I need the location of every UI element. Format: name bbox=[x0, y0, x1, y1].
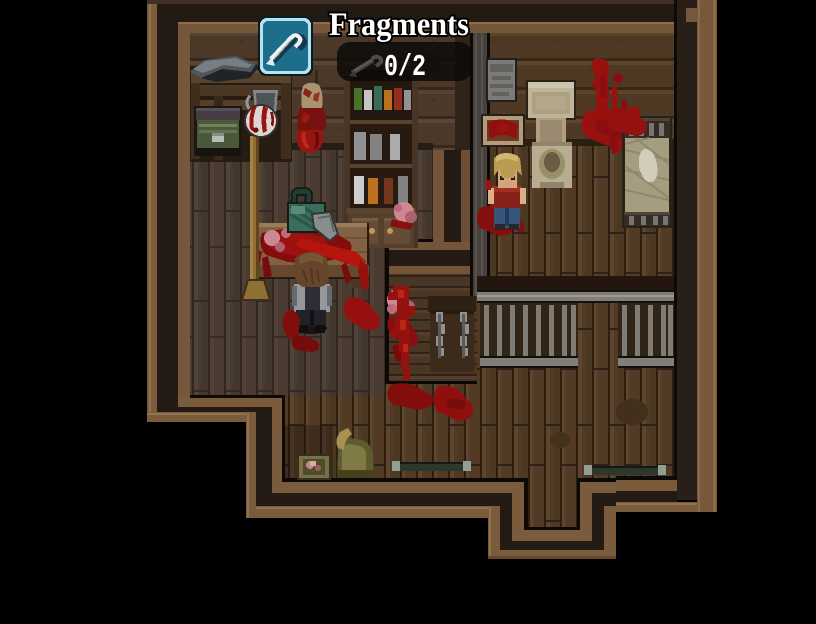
svg-text:Fragments: Fragments bbox=[329, 7, 469, 43]
svg-text:0/2: 0/2 bbox=[384, 50, 426, 85]
